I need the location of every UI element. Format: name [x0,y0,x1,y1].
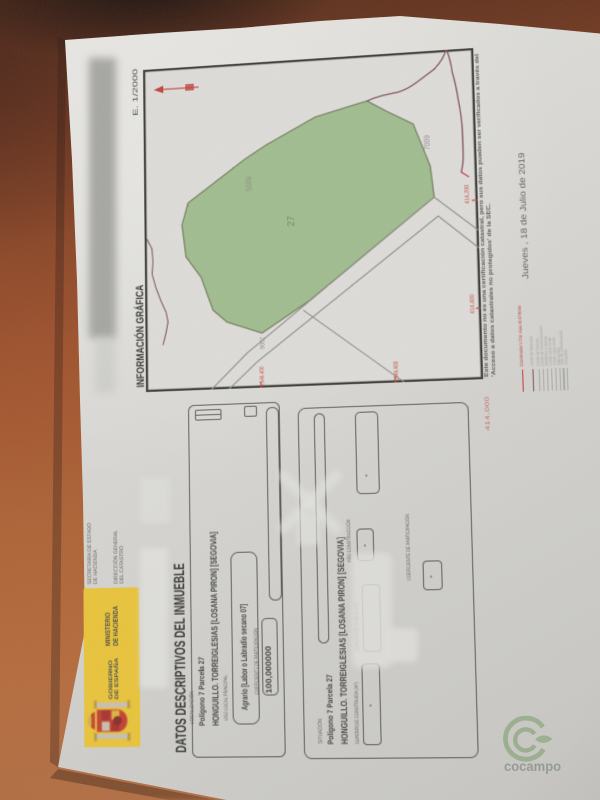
svg-text:4,546,400: 4,546,400 [259,366,266,387]
svg-text:4,546,600: 4,546,600 [393,361,400,382]
svg-text:414,400: 414,400 [469,294,476,314]
svg-text:9002: 9002 [260,337,267,349]
svg-text:5009: 5009 [244,176,254,191]
svg-text:7009: 7009 [422,135,432,150]
svg-text:cocampo: cocampo [504,759,561,775]
svg-text:414,200: 414,200 [464,184,471,203]
svg-text:27: 27 [286,215,297,226]
